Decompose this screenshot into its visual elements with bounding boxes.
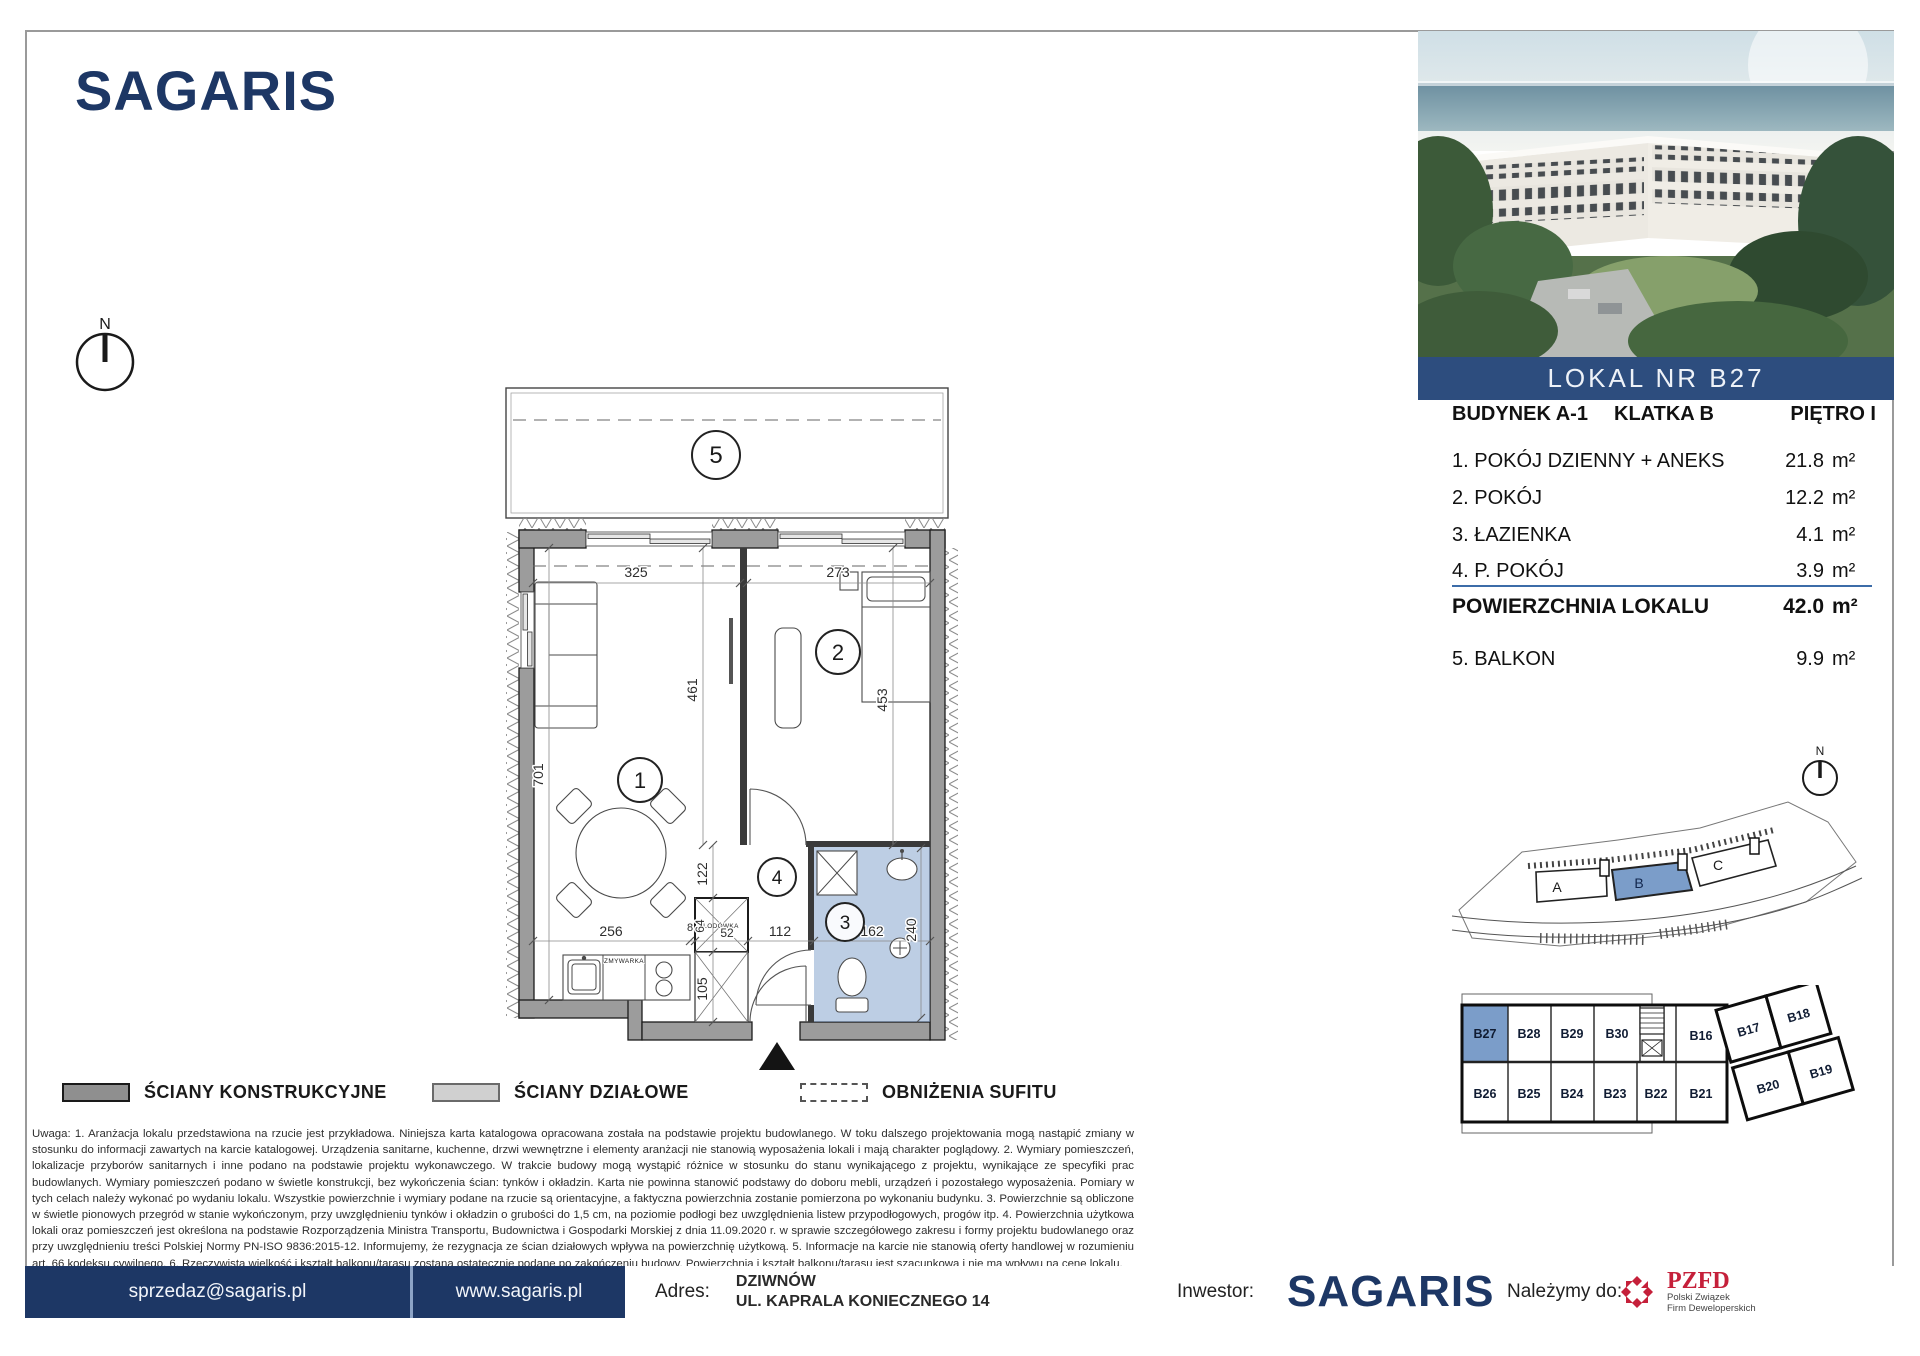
unit-label-b21: B21 bbox=[1690, 1087, 1713, 1101]
building-c bbox=[1692, 840, 1776, 886]
wardrobe bbox=[775, 628, 801, 728]
dim-shaft: 105 bbox=[694, 977, 710, 1001]
legend-label: OBNIŻENIA SUFITU bbox=[882, 1082, 1057, 1103]
footer-email-block: sprzedaz@sagaris.pl bbox=[25, 1266, 410, 1318]
total-unit: m² bbox=[1832, 595, 1876, 619]
balcony-name: 5. BALKON bbox=[1452, 648, 1555, 671]
legend-swatch-structural bbox=[62, 1083, 130, 1102]
dim-wall-mid: 461 bbox=[684, 678, 700, 702]
washing-machine bbox=[817, 851, 857, 895]
investor-wordmark: SAGARIS bbox=[1287, 1267, 1494, 1317]
dishwasher-label: ZMYWARKA bbox=[604, 958, 644, 965]
room-area: 3.9 bbox=[1734, 560, 1824, 583]
dim-hall-upper: 122 bbox=[694, 862, 710, 886]
unit-label-b29: B29 bbox=[1561, 1027, 1584, 1041]
footer: sprzedaz@sagaris.pl www.sagaris.pl Adres… bbox=[25, 1266, 1894, 1318]
footer-membership: Należymy do: bbox=[1507, 1266, 1622, 1318]
building-b-label: B bbox=[1634, 875, 1643, 891]
membership-label: Należymy do: bbox=[1507, 1281, 1622, 1303]
footer-investor-logo: SAGARIS bbox=[1287, 1266, 1494, 1318]
balcony-area: 9.9 bbox=[1734, 648, 1824, 671]
pzfd-text: PZFD Polski Związek Firm Deweloperskich bbox=[1667, 1270, 1756, 1314]
address-line1: DZIWNÓW bbox=[736, 1273, 816, 1290]
building-label: BUDYNEK A-1 bbox=[1452, 403, 1588, 426]
dim-hall-width: 112 bbox=[769, 923, 792, 939]
legend-swatch-ceiling bbox=[800, 1083, 868, 1102]
catalog-card-page: SAGARIS N bbox=[0, 0, 1920, 1356]
dim-fridge-width: 52 bbox=[720, 926, 734, 940]
footer-website-block: www.sagaris.pl bbox=[413, 1266, 625, 1318]
disclaimer-text: Uwaga: 1. Aranżacja lokalu przedstawiona… bbox=[32, 1126, 1134, 1272]
address-line2: UL. KAPRALA KONIECZNEGO 14 bbox=[736, 1293, 990, 1310]
floor-plan: ZMYWARKA LODÓWKA bbox=[392, 300, 972, 1090]
compass-north-label: N bbox=[99, 316, 111, 333]
address-lines: DZIWNÓW UL. KAPRALA KONIECZNEGO 14 bbox=[736, 1272, 990, 1312]
footer-email: sprzedaz@sagaris.pl bbox=[129, 1281, 307, 1303]
total-row: POWIERZCHNIA LOKALU 42.0 m² bbox=[1452, 595, 1876, 621]
unit-label-b28: B28 bbox=[1518, 1027, 1541, 1041]
total-divider bbox=[1452, 585, 1872, 587]
legend-ceiling-drops: OBNIŻENIA SUFITU bbox=[800, 1082, 1057, 1103]
legend-swatch-partition bbox=[432, 1083, 500, 1102]
building-render-photo bbox=[1418, 31, 1894, 357]
floor-label: PIĘTRO I bbox=[1790, 403, 1876, 426]
unit-label-b23: B23 bbox=[1604, 1087, 1627, 1101]
unit-number-label: LOKAL NR B27 bbox=[1547, 363, 1764, 394]
room-area: 21.8 bbox=[1734, 450, 1824, 473]
footer-website: www.sagaris.pl bbox=[456, 1281, 583, 1303]
unit-label-b30: B30 bbox=[1606, 1027, 1629, 1041]
stairwell-a bbox=[1600, 860, 1609, 876]
staircase-label: KLATKA B bbox=[1614, 403, 1714, 426]
room-unit: m² bbox=[1832, 487, 1876, 510]
compass-north-label: N bbox=[1816, 744, 1825, 758]
total-label: POWIERZCHNIA LOKALU bbox=[1452, 595, 1709, 619]
doors bbox=[750, 789, 811, 1022]
grid-rotated-wing: B17 B18 B20 B19 bbox=[1716, 985, 1853, 1120]
room-name: 3. ŁAZIENKA bbox=[1452, 524, 1571, 547]
room-name: 2. POKÓJ bbox=[1452, 487, 1542, 510]
brand-logo: SAGARIS bbox=[75, 58, 337, 123]
room-unit: m² bbox=[1832, 524, 1876, 547]
toilet bbox=[836, 958, 868, 1012]
legend-structural-walls: ŚCIANY KONSTRUKCYJNE bbox=[62, 1082, 387, 1103]
dim-room2-width: 273 bbox=[826, 564, 850, 580]
horizon bbox=[1418, 81, 1894, 86]
room-unit: m² bbox=[1832, 450, 1876, 473]
sofa bbox=[535, 582, 597, 728]
room2-number: 2 bbox=[832, 640, 844, 665]
pzfd-logo: PZFD Polski Związek Firm Deweloperskich bbox=[1617, 1266, 1756, 1318]
room-row: 1. POKÓJ DZIENNY + ANEKS 21.8 m² bbox=[1452, 450, 1876, 476]
dim-room1-depth: 701 bbox=[530, 763, 546, 787]
unit-label-b16: B16 bbox=[1690, 1029, 1713, 1043]
pzfd-acronym: PZFD bbox=[1667, 1270, 1756, 1292]
building-a-label: A bbox=[1552, 879, 1562, 895]
unit-label-b22: B22 bbox=[1645, 1087, 1668, 1101]
footer-investor: Inwestor: bbox=[1177, 1266, 1254, 1318]
unit-header-row: BUDYNEK A-1 KLATKA B PIĘTRO I bbox=[1452, 403, 1876, 433]
dining-table bbox=[555, 787, 687, 919]
stairwell-c bbox=[1750, 838, 1759, 854]
stairwell-b bbox=[1678, 854, 1687, 870]
sea bbox=[1418, 83, 1894, 131]
pzfd-pinwheel-icon bbox=[1617, 1272, 1657, 1312]
dim-bath-depth: 240 bbox=[903, 918, 919, 942]
room-row: 3. ŁAZIENKA 4.1 m² bbox=[1452, 524, 1876, 550]
investor-label: Inwestor: bbox=[1177, 1281, 1254, 1303]
unit-label-b24: B24 bbox=[1561, 1087, 1584, 1101]
room-name: 4. P. POKÓJ bbox=[1452, 560, 1564, 583]
entrance-arrow-icon bbox=[759, 1042, 795, 1070]
compass-small: N bbox=[1790, 738, 1850, 800]
room-row: 2. POKÓJ 12.2 m² bbox=[1452, 487, 1876, 513]
site-plan: A B C bbox=[1445, 795, 1905, 975]
compass-main: N bbox=[60, 305, 150, 400]
stair-shaft bbox=[1640, 1008, 1664, 1056]
room-area: 12.2 bbox=[1734, 487, 1824, 510]
room1-number: 1 bbox=[634, 768, 646, 793]
balcony-unit: m² bbox=[1832, 648, 1876, 671]
unit-label-b25: B25 bbox=[1518, 1087, 1541, 1101]
kitchen-counter: ZMYWARKA bbox=[563, 955, 690, 1000]
dim-kitchen-run: 256 bbox=[599, 923, 623, 939]
tv-icon bbox=[729, 618, 733, 684]
room4-number: 4 bbox=[772, 868, 783, 889]
room-name: 1. POKÓJ DZIENNY + ANEKS bbox=[1452, 450, 1725, 473]
room-row: 4. P. POKÓJ 3.9 m² bbox=[1452, 560, 1876, 586]
address-label: Adres: bbox=[655, 1281, 710, 1303]
unit-label-b26: B26 bbox=[1474, 1087, 1497, 1101]
legend-partition-walls: ŚCIANY DZIAŁOWE bbox=[432, 1082, 689, 1103]
dim-room1-width: 325 bbox=[624, 564, 648, 580]
building-a bbox=[1536, 868, 1607, 902]
room5-number: 5 bbox=[709, 442, 722, 469]
unit-number-band: LOKAL NR B27 bbox=[1418, 357, 1894, 400]
room-unit: m² bbox=[1832, 560, 1876, 583]
legend-label: ŚCIANY DZIAŁOWE bbox=[514, 1082, 689, 1103]
footer-address: Adres: DZIWNÓW UL. KAPRALA KONIECZNEGO 1… bbox=[655, 1266, 990, 1318]
balcony-row: 5. BALKON 9.9 m² bbox=[1452, 648, 1876, 674]
dim-room2-depth: 453 bbox=[874, 688, 890, 712]
room-area: 4.1 bbox=[1734, 524, 1824, 547]
total-area: 42.0 bbox=[1734, 595, 1824, 619]
building-c-label: C bbox=[1713, 857, 1723, 873]
pzfd-line2: Firm Deweloperskich bbox=[1667, 1303, 1756, 1314]
legend-label: ŚCIANY KONSTRUKCYJNE bbox=[144, 1082, 387, 1103]
unit-label-b27: B27 bbox=[1474, 1027, 1497, 1041]
room3-number: 3 bbox=[840, 913, 851, 934]
floor-unit-grid: B17 B18 B20 B19 B27 B28 B29 B30 B16 B26 … bbox=[1450, 985, 1870, 1150]
dim-fridge-depth: 64 bbox=[693, 919, 707, 933]
pzfd-line1: Polski Związek bbox=[1667, 1292, 1730, 1303]
